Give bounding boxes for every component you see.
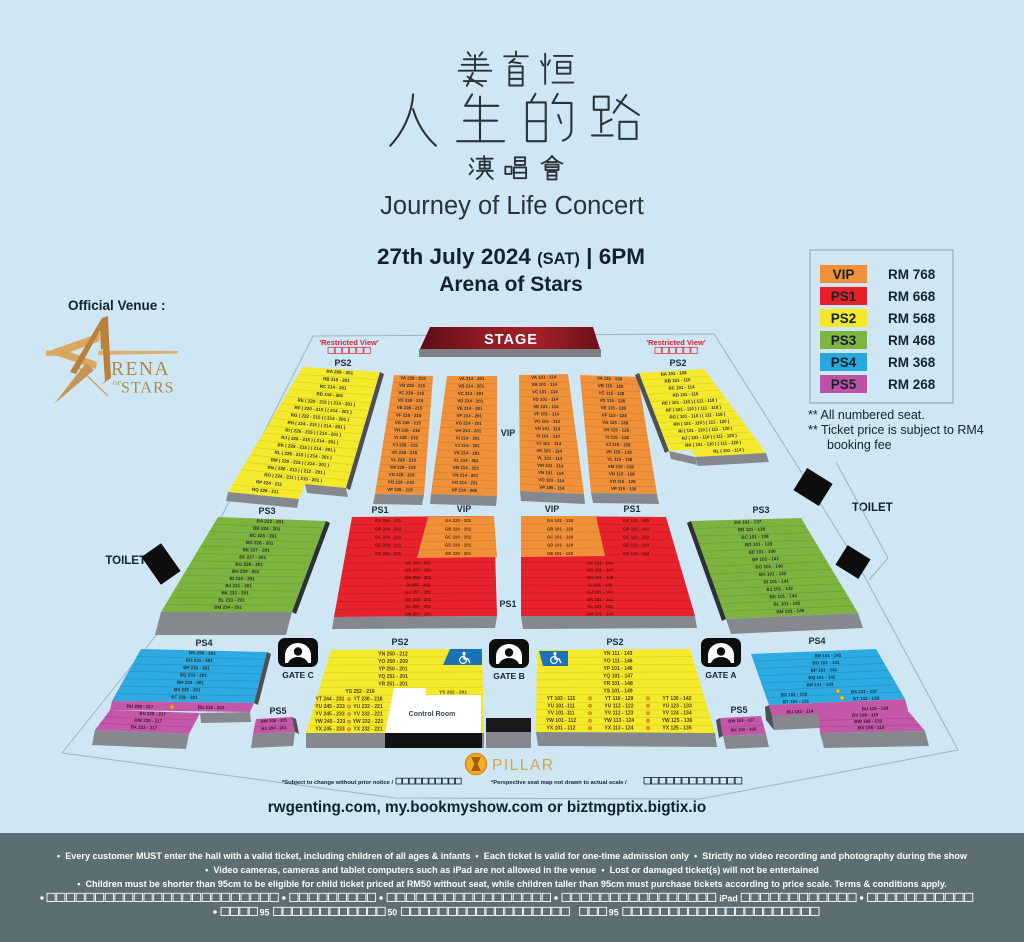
svg-text:VJ 214 - 201: VJ 214 - 201: [455, 443, 481, 448]
svg-text:YW 101 - 112: YW 101 - 112: [546, 718, 577, 724]
svg-text:BE 227 - 201: BE 227 - 201: [243, 547, 271, 553]
svg-text:VE 228 - 215: VE 228 - 215: [397, 405, 423, 411]
svg-text:GL 101 - 142: GL 101 - 142: [587, 604, 613, 609]
svg-text:BF 101 - 141: BF 101 - 141: [752, 556, 779, 562]
svg-text:GE 220 - 201: GE 220 - 201: [445, 551, 472, 556]
svg-text:BD 101 - 139: BD 101 - 139: [745, 541, 773, 547]
svg-text:VB 101 - 114: VB 101 - 114: [531, 382, 557, 387]
svg-text:BP 232 - 201: BP 232 - 201: [183, 665, 210, 671]
svg-text:Journey of Life Concert: Journey of Life Concert: [380, 192, 644, 220]
svg-text:BQ 101 - 142: BQ 101 - 142: [808, 674, 836, 680]
svg-text:YU 101 -111: YU 101 -111: [547, 703, 575, 709]
svg-text:YX 101 - 112: YX 101 - 112: [547, 726, 576, 732]
svg-text:BO 101 - 141: BO 101 - 141: [812, 660, 840, 666]
svg-text:BG 101 - 140: BG 101 - 140: [755, 564, 783, 570]
svg-text:VF 228 - 215: VF 228 - 215: [396, 413, 422, 419]
svg-text:RENA: RENA: [111, 359, 170, 380]
svg-text:iPad: iPad: [719, 894, 738, 904]
svg-text:BT 236 - 201: BT 236 - 201: [171, 695, 198, 700]
svg-text:YR 251 - 201: YR 251 - 201: [378, 682, 408, 688]
svg-text:PS1: PS1: [623, 504, 640, 514]
svg-text:YT 103 - 115: YT 103 - 115: [547, 696, 576, 702]
svg-text:VE 214 - 201: VE 214 - 201: [457, 406, 483, 411]
svg-text:YX 113 - 124: YX 113 - 124: [605, 726, 634, 732]
svg-text:BB 224 - 201: BB 224 - 201: [253, 526, 281, 532]
svg-text:VP 115 - 136: VP 115 - 136: [611, 486, 637, 491]
svg-text:VI 115 - 128: VI 115 - 128: [605, 435, 629, 441]
svg-text:VH 214 - 201: VH 214 - 201: [455, 428, 482, 433]
svg-text:YV 124 - 134: YV 124 - 134: [662, 711, 691, 717]
svg-text:VJ 101 - 114: VJ 101 - 114: [536, 441, 562, 447]
svg-text:YU 123 - 133: YU 123 - 133: [662, 703, 692, 709]
svg-text:VC 228 - 215: VC 228 - 215: [398, 390, 425, 396]
svg-text:BF 227 - 201: BF 227 - 201: [239, 554, 266, 560]
svg-text:RM 768: RM 768: [888, 267, 936, 282]
svg-text:GB 121 - 141: GB 121 - 141: [623, 526, 650, 531]
svg-text:• Children must be shorter th: • Children must be shorter than 95cm to …: [77, 879, 947, 889]
svg-text:YW 245 - 233: YW 245 - 233: [315, 719, 346, 725]
svg-text:YS 252 - 216: YS 252 - 216: [345, 689, 374, 695]
svg-text:PS1: PS1: [831, 289, 857, 304]
svg-text:PS2: PS2: [831, 311, 857, 326]
svg-text:VM 101 - 114: VM 101 - 114: [537, 463, 564, 469]
svg-text:GJ 257 - 201: GJ 257 - 201: [405, 590, 431, 595]
svg-text:GK 258 - 201: GK 258 - 201: [405, 597, 432, 602]
svg-text:GB 220 - 201: GB 220 - 201: [445, 526, 472, 531]
svg-text:BU 115 - 128: BU 115 - 128: [862, 706, 889, 712]
svg-text:RM 568: RM 568: [888, 311, 936, 326]
svg-text:VO 214 - 201: VO 214 - 201: [452, 480, 479, 486]
svg-text:GA 220 - 201: GA 220 - 201: [445, 518, 472, 523]
svg-text:VA 228 - 215: VA 228 - 215: [400, 375, 426, 381]
svg-text:VL 115 - 128: VL 115 - 128: [607, 457, 633, 462]
svg-text:27th July 2024 (SAT) | 6PM: 27th July 2024 (SAT) | 6PM: [377, 244, 645, 269]
svg-text:VF 101 - 114: VF 101 - 114: [534, 411, 560, 416]
svg-text:VD 115 - 128: VD 115 - 128: [599, 398, 625, 404]
svg-text:YS 202 - 201: YS 202 - 201: [439, 690, 467, 696]
svg-text:VIP: VIP: [833, 267, 855, 282]
svg-text:BR 234 - 201: BR 234 - 201: [177, 680, 204, 685]
svg-text:PS1: PS1: [499, 599, 516, 609]
svg-text:BE 101 - 140: BE 101 - 140: [748, 549, 776, 555]
svg-text:BA 223 - 201: BA 223 - 201: [256, 518, 284, 524]
svg-text:GE 121 - 144: GE 121 - 144: [623, 551, 650, 556]
svg-text:'Restricted View': 'Restricted View': [319, 338, 379, 347]
svg-text:PS5: PS5: [730, 705, 747, 715]
svg-text:BI 230 - 201: BI 230 - 201: [229, 576, 255, 581]
svg-text:PS2: PS2: [391, 637, 408, 647]
svg-text:PS2: PS2: [606, 637, 623, 647]
svg-text:BI 101 - 141: BI 101 - 141: [764, 578, 790, 584]
svg-text:VH 228 - 215: VH 228 - 215: [394, 427, 421, 433]
svg-text:VM 228 - 215: VM 228 - 215: [389, 465, 416, 471]
svg-text:BN 101 - 141: BN 101 - 141: [815, 653, 842, 659]
svg-text:booking fee: booking fee: [827, 438, 892, 452]
svg-text:*Perspective seat map not draw: *Perspective seat map not drawn to actua…: [491, 780, 627, 786]
svg-text:VB 228 - 215: VB 228 - 215: [399, 383, 426, 389]
svg-text:GF 256 - 201: GF 256 - 201: [405, 560, 431, 565]
svg-text:VI 101 - 114: VI 101 - 114: [536, 433, 560, 438]
svg-text:YW 125 - 136: YW 125 - 136: [662, 718, 693, 724]
svg-text:BU 103 - 114: BU 103 - 114: [787, 709, 814, 715]
svg-text:VJ 115 - 128: VJ 115 - 128: [606, 442, 632, 448]
svg-text:BS 131 - 137: BS 131 - 137: [851, 689, 878, 695]
svg-text:PS4: PS4: [831, 355, 857, 370]
svg-text:BB 101 - 138: BB 101 - 138: [738, 527, 766, 533]
svg-text:BK 232 - 201: BK 232 - 201: [221, 590, 249, 595]
svg-text:VK 214 - 201: VK 214 - 201: [454, 450, 481, 456]
svg-text:VP 214 - 205: VP 214 - 205: [451, 487, 477, 493]
svg-text:VJ 228 - 215: VJ 228 - 215: [393, 442, 419, 448]
svg-text:VF 115 - 128: VF 115 - 128: [602, 412, 628, 418]
svg-text:95: 95: [609, 908, 619, 918]
svg-text:YQ 251 - 201: YQ 251 - 201: [378, 674, 408, 680]
svg-text:TOILET: TOILET: [105, 555, 146, 567]
svg-text:VK 115 - 128: VK 115 - 128: [606, 449, 632, 455]
svg-text:RM 368: RM 368: [888, 355, 936, 370]
svg-text:BO 231 - 201: BO 231 - 201: [186, 658, 214, 664]
svg-text:GL 256 - 201: GL 256 - 201: [405, 604, 431, 609]
svg-text:RM 468: RM 468: [888, 333, 936, 348]
svg-text:GD 220 - 201: GD 220 - 201: [445, 543, 472, 548]
svg-text:BU 239 - 217: BU 239 - 217: [127, 704, 154, 710]
svg-text:VG 214 - 201: VG 214 - 201: [456, 421, 483, 426]
svg-text:YW 113 - 124: YW 113 - 124: [604, 718, 635, 724]
svg-text:BS 235 - 201: BS 235 - 201: [174, 687, 201, 692]
svg-text:VC 101 - 114: VC 101 - 114: [532, 389, 558, 394]
svg-text:VG 228 - 215: VG 228 - 215: [395, 420, 422, 426]
svg-text:GE 101 - 120: GE 101 - 120: [547, 551, 574, 556]
svg-text:VE 115 - 128: VE 115 - 128: [601, 405, 627, 411]
svg-text:VH 101 - 114: VH 101 - 114: [535, 426, 561, 431]
svg-text:YX 245 - 233: YX 245 - 233: [315, 727, 344, 733]
svg-text:GD 254 - 221: GD 254 - 221: [375, 543, 402, 548]
svg-text:VIP: VIP: [545, 504, 560, 514]
svg-text:YV 112 - 123: YV 112 - 123: [605, 711, 634, 717]
svg-text:GJ 101 - 140: GJ 101 - 140: [587, 590, 613, 595]
svg-text:VC 214 - 201: VC 214 - 201: [458, 391, 484, 396]
svg-text:VI 214 - 201: VI 214 - 201: [456, 435, 481, 440]
svg-text:PS3: PS3: [831, 333, 857, 348]
svg-text:BL 233 - 201: BL 233 - 201: [218, 598, 245, 603]
svg-text:VB 115 - 128: VB 115 - 128: [598, 383, 624, 389]
svg-text:VC 115 - 128: VC 115 - 128: [599, 390, 625, 396]
svg-text:BP 101 - 141: BP 101 - 141: [811, 667, 838, 673]
svg-text:VD 214 - 201: VD 214 - 201: [457, 398, 483, 403]
svg-text:PS1: PS1: [371, 505, 388, 515]
svg-text:VL 101 - 114: VL 101 - 114: [537, 455, 563, 461]
svg-text:95: 95: [260, 908, 270, 918]
svg-text:GD 101 - 120: GD 101 - 120: [547, 543, 574, 548]
svg-text:VIP: VIP: [457, 504, 472, 514]
svg-text:YU 245 - 233: YU 245 - 233: [315, 704, 345, 710]
svg-text:VK 101 - 114: VK 101 - 114: [536, 448, 562, 454]
svg-text:** Ticket price is subject to: ** Ticket price is subject to RM4: [808, 423, 984, 437]
svg-text:GC 254 - 221: GC 254 - 221: [375, 535, 402, 540]
svg-text:PS2: PS2: [334, 358, 351, 368]
svg-text:GC 101 - 120: GC 101 - 120: [547, 535, 574, 540]
svg-text:VIP: VIP: [501, 428, 516, 438]
svg-text:BM 234 - 201: BM 234 - 201: [214, 605, 242, 610]
svg-text:YV 101 -111: YV 101 -111: [547, 711, 574, 717]
svg-text:VD 101 - 114: VD 101 - 114: [533, 397, 559, 402]
svg-text:PILLAR: PILLAR: [492, 757, 554, 774]
svg-text:GA 254 - 221: GA 254 - 221: [375, 518, 402, 523]
svg-text:GATE B: GATE B: [493, 671, 524, 681]
svg-text:GA 101 - 120: GA 101 - 120: [547, 518, 574, 523]
svg-text:VN 214 - 201: VN 214 - 201: [452, 472, 479, 478]
svg-text:50: 50: [387, 908, 397, 918]
svg-text:YP 250 - 201: YP 250 - 201: [378, 666, 407, 672]
svg-text:VE 101 - 114: VE 101 - 114: [533, 404, 559, 409]
svg-text:VH 115 - 128: VH 115 - 128: [603, 427, 629, 433]
svg-text:BQ 233 - 201: BQ 233 - 201: [180, 672, 208, 678]
svg-text:VA 101 - 114: VA 101 - 114: [531, 374, 557, 379]
svg-text:BR 101 - 143: BR 101 - 143: [807, 682, 834, 688]
svg-text:VO 115 - 128: VO 115 - 128: [610, 479, 637, 484]
svg-text:GE 254 - 221: GE 254 - 221: [375, 551, 402, 556]
svg-text:GM 101 - 143: GM 101 - 143: [587, 612, 614, 617]
svg-text:YT 116 - 129: YT 116 - 129: [605, 696, 634, 702]
svg-text:BA 101 - 137: BA 101 - 137: [734, 519, 762, 525]
svg-text:Control Room: Control Room: [409, 711, 456, 718]
svg-text:PS3: PS3: [258, 506, 275, 516]
svg-text:PS3: PS3: [752, 505, 769, 515]
svg-text:GB 254 - 221: GB 254 - 221: [375, 526, 402, 531]
svg-text:VO 228 - 215: VO 228 - 215: [388, 479, 415, 485]
svg-text:VN 101 - 114: VN 101 - 114: [538, 470, 564, 476]
svg-text:Arena of Stars: Arena of Stars: [439, 273, 583, 296]
svg-text:PS5: PS5: [831, 377, 857, 392]
svg-text:STAGE: STAGE: [484, 332, 538, 348]
svg-text:YU 232 - 221: YU 232 - 221: [353, 704, 383, 710]
svg-text:VP 228 - 215: VP 228 - 215: [387, 487, 413, 493]
svg-text:VG 101 - 114: VG 101 - 114: [534, 419, 560, 424]
svg-text:STARS: STARS: [121, 380, 175, 397]
svg-text:BW 108 - 119: BW 108 - 119: [854, 719, 882, 725]
svg-text:VL 214 - 201: VL 214 - 201: [454, 458, 480, 464]
svg-text:BX 108 - 119: BX 108 - 119: [858, 725, 885, 731]
svg-text:GATE A: GATE A: [705, 670, 736, 680]
svg-text:GC 121 - 142: GC 121 - 142: [623, 535, 650, 540]
svg-text:YV 245 - 233: YV 245 - 233: [315, 712, 344, 718]
svg-text:YQ 101 - 147: YQ 101 - 147: [603, 673, 633, 679]
svg-text:BJ 231 - 201: BJ 231 - 201: [225, 583, 252, 588]
svg-text:GF 101 - 146: GF 101 - 146: [587, 560, 613, 565]
svg-text:BG 228 - 201: BG 228 - 201: [235, 562, 263, 567]
svg-text:VA 115 - 128: VA 115 - 128: [597, 376, 623, 382]
svg-text:YR 101 - 148: YR 101 - 148: [603, 681, 633, 687]
svg-text:Official Venue :: Official Venue :: [68, 298, 166, 313]
svg-text:• Every customer MUST enter t: • Every customer MUST enter the hall wit…: [57, 851, 968, 861]
svg-text:GI 256 - 201: GI 256 - 201: [406, 582, 431, 587]
svg-text:BS 101 - 130: BS 101 - 130: [781, 692, 808, 698]
svg-text:VG 115 - 128: VG 115 - 128: [602, 420, 629, 426]
svg-text:BC 225 - 201: BC 225 - 201: [249, 533, 277, 539]
svg-text:GM 257 - 201: GM 257 - 201: [405, 612, 432, 617]
svg-text:GK 101 - 141: GK 101 - 141: [587, 597, 614, 602]
svg-text:VN 228 - 215: VN 228 - 215: [389, 472, 416, 478]
svg-text:YP 101 - 146: YP 101 - 146: [603, 666, 632, 672]
svg-text:BU 218 - 203: BU 218 - 203: [198, 705, 225, 711]
svg-text:rwgenting.com, my.bookmyshow.c: rwgenting.com, my.bookmyshow.com or bizt…: [268, 799, 707, 816]
svg-text:BD 226 - 201: BD 226 - 201: [246, 540, 274, 546]
svg-text:YT 230 - 218: YT 230 - 218: [354, 697, 383, 703]
svg-text:GC 220 - 201: GC 220 - 201: [445, 535, 472, 540]
svg-text:BV 108 - 119: BV 108 - 119: [852, 712, 879, 718]
svg-text:VM 115 - 128: VM 115 - 128: [608, 464, 635, 470]
svg-text:YO 111 - 146: YO 111 - 146: [603, 659, 632, 665]
svg-text:PS2: PS2: [669, 358, 686, 368]
svg-text:YT 244 - 231: YT 244 - 231: [316, 697, 345, 703]
svg-text:GB 101 - 120: GB 101 - 120: [547, 526, 574, 531]
svg-text:YT 130 - 142: YT 130 - 142: [663, 696, 692, 702]
svg-text:YO 250 - 209: YO 250 - 209: [378, 659, 408, 665]
svg-text:YU 112 - 122: YU 112 - 122: [604, 703, 633, 709]
svg-text:PS5: PS5: [269, 706, 286, 716]
svg-text:** All numbered seat.: ** All numbered seat.: [808, 408, 925, 422]
svg-text:VD 228 - 215: VD 228 - 215: [397, 398, 424, 404]
svg-text:PS4: PS4: [195, 638, 212, 648]
svg-text:PS4: PS4: [808, 636, 825, 646]
svg-text:BV 226 - 217: BV 226 - 217: [139, 711, 166, 717]
svg-text:GH 101 - 148: GH 101 - 148: [587, 575, 614, 580]
svg-text:VL 228 - 215: VL 228 - 215: [391, 457, 417, 463]
svg-text:RM 668: RM 668: [888, 289, 936, 304]
svg-text:YS 101 - 149: YS 101 - 149: [603, 688, 632, 694]
svg-text:YN 111 - 143: YN 111 - 143: [604, 651, 633, 657]
svg-text:GATE C: GATE C: [282, 670, 313, 680]
svg-text:VN 115 - 128: VN 115 - 128: [609, 471, 635, 476]
svg-text:YX 232 - 221: YX 232 - 221: [353, 727, 382, 733]
svg-text:GD 121 - 143: GD 121 - 143: [623, 543, 650, 548]
svg-text:*Subject to change without pri: *Subject to change without prior notice …: [282, 780, 394, 786]
svg-text:BH 101 - 140: BH 101 - 140: [759, 571, 787, 577]
svg-text:YX 125 - 135: YX 125 - 135: [662, 726, 691, 732]
svg-text:GG 257 - 201: GG 257 - 201: [405, 568, 432, 573]
svg-text:BN 250 - 201: BN 250 - 201: [189, 650, 216, 656]
svg-text:VI 228 - 215: VI 228 - 215: [394, 435, 419, 441]
svg-text:GG 101 - 147: GG 101 - 147: [587, 568, 614, 573]
svg-text:BC 101 - 138: BC 101 - 138: [741, 534, 769, 540]
svg-text:VM 214 - 201: VM 214 - 201: [452, 465, 479, 471]
svg-text:GA 121 - 140: GA 121 - 140: [623, 518, 650, 523]
svg-text:GI 101 - 149: GI 101 - 149: [588, 582, 613, 587]
svg-text:YV 232 - 221: YV 232 - 221: [353, 712, 382, 718]
svg-text:RM 268: RM 268: [888, 377, 936, 392]
svg-text:VB 214 - 201: VB 214 - 201: [458, 383, 484, 388]
svg-text:• Video cameras, cameras and: • Video cameras, cameras and tablet comp…: [205, 865, 819, 875]
svg-text:BH 229 - 201: BH 229 - 201: [232, 569, 260, 574]
svg-text:VK 228 - 215: VK 228 - 215: [391, 450, 418, 456]
svg-text:YW 232 - 221: YW 232 - 221: [353, 719, 384, 725]
svg-text:YN 250 - 212: YN 250 - 212: [378, 651, 408, 657]
svg-text:'Restricted View': 'Restricted View': [646, 338, 706, 347]
svg-text:VF 214 - 201: VF 214 - 201: [456, 413, 482, 418]
svg-text:VA 214 - 201: VA 214 - 201: [459, 376, 485, 381]
svg-text:GH 258 - 201: GH 258 - 201: [405, 575, 432, 580]
